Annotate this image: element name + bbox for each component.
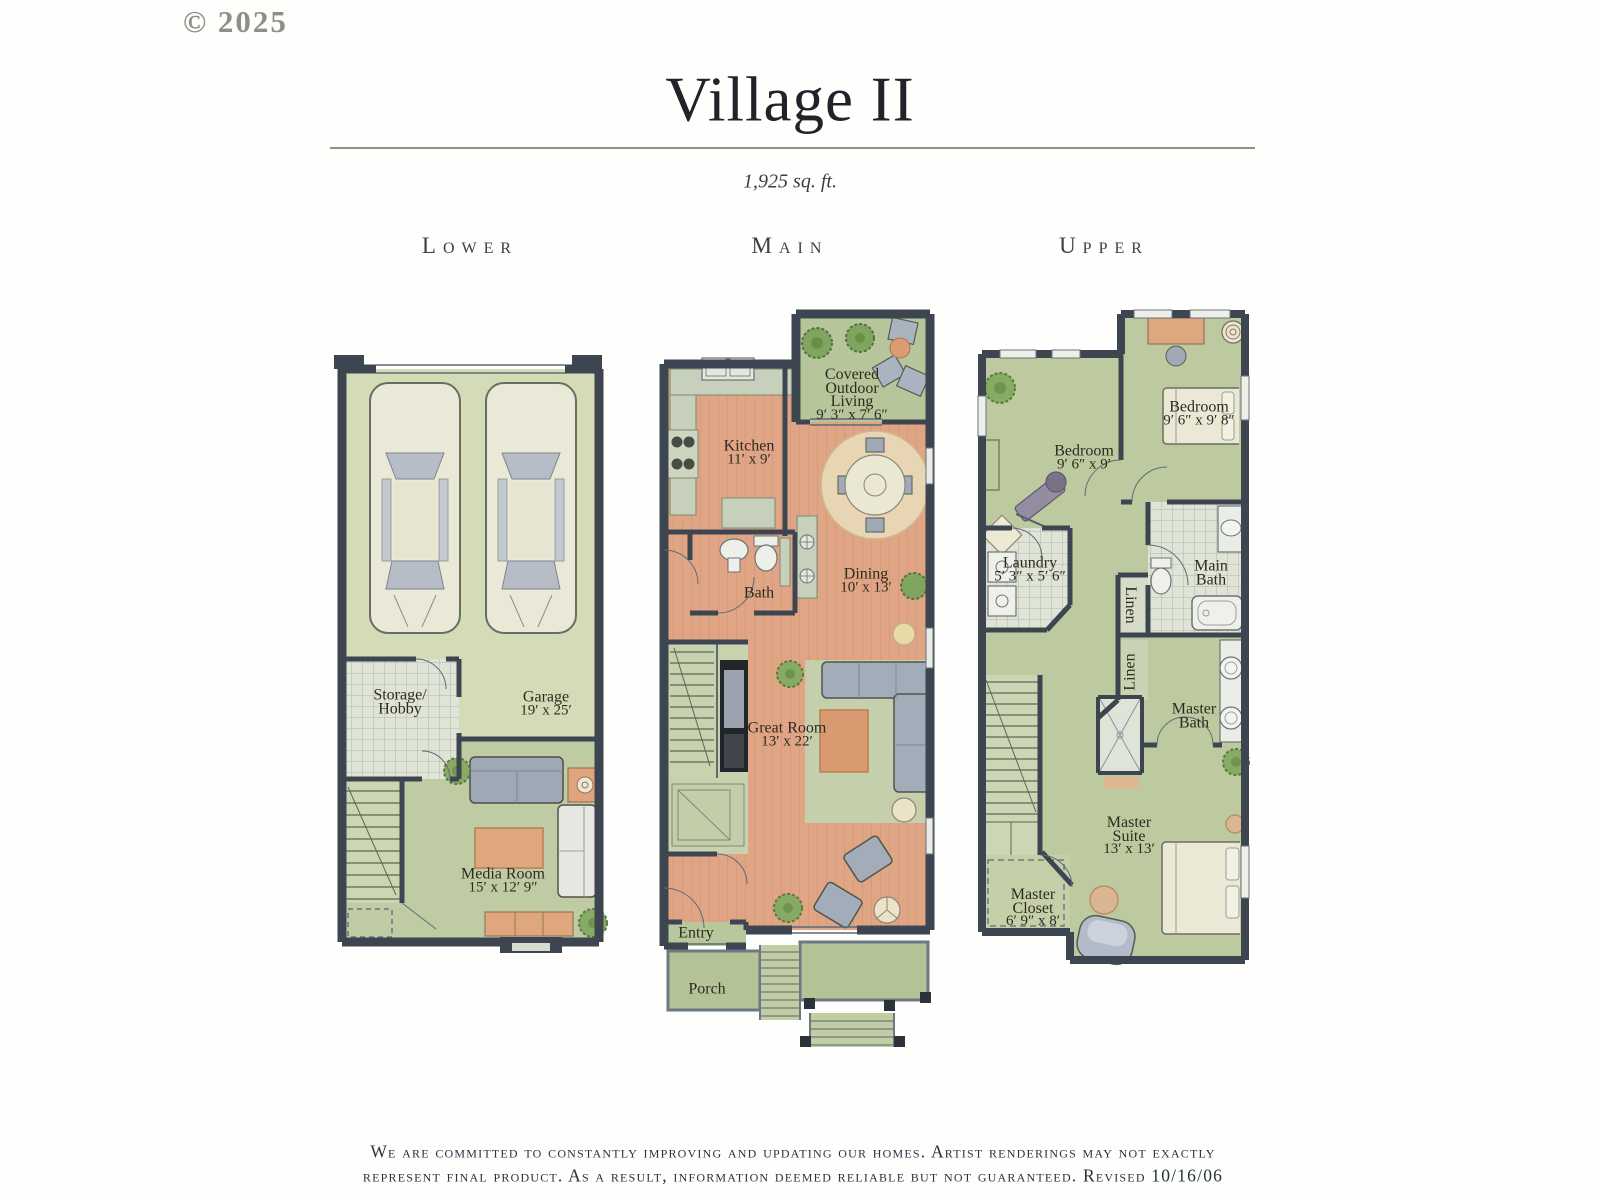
room-label-media-room: Media Room 15′ x 12′ 9″ [461, 868, 545, 895]
round-table-icon [1222, 321, 1244, 343]
room-label-master-suite: Master Suite 13′ x 13′ [1103, 816, 1155, 857]
room-dims: 13′ x 13′ [1103, 843, 1155, 857]
couch-icon [470, 757, 563, 803]
room-label-dining: Dining 10′ x 13′ [840, 568, 892, 595]
side-table-icon [874, 897, 900, 923]
room-name-line: Entry [678, 926, 714, 940]
room-label-master-closet: Master Closet 6′ 9″ x 8′ [1006, 888, 1060, 929]
copyright-text: © 2025 [183, 4, 288, 40]
bath-sink-icon [1218, 506, 1245, 552]
floor-header-lower: Lower [422, 233, 518, 259]
room-label-linen-upper: Linen [1123, 586, 1137, 623]
room-dims: 9′ 3″ x 7′ 6″ [816, 409, 888, 423]
room-name-line: Bath [1194, 573, 1228, 587]
floor-header-main: Main [752, 233, 829, 259]
stove-icon [668, 430, 698, 478]
bed-icon [1162, 840, 1246, 936]
floorplan-sheet: © 2025 Village II 1,925 sq. ft. Lower Ma… [0, 0, 1600, 1200]
room-label-bath: Bath [744, 586, 774, 600]
sofa-icon [558, 805, 596, 897]
rug [820, 710, 868, 772]
dining-table-icon [821, 431, 929, 539]
toilet-icon [1151, 558, 1171, 594]
media-console-icon [485, 912, 573, 936]
room-dims: 9′ 6″ x 9′ 8″ [1163, 414, 1235, 428]
room-dims: 11′ x 9′ [724, 453, 775, 467]
room-name-line: Hobby [373, 702, 426, 716]
room-label-bedroom-right: Bedroom 9′ 6″ x 9′ 8″ [1163, 401, 1235, 428]
room-label-covered-outdoor-living: Covered Outdoor Living 9′ 3″ x 7′ 6″ [816, 368, 888, 422]
floor-header-upper: Upper [1059, 233, 1149, 259]
room-label-storage-hobby: Storage/ Hobby [373, 689, 426, 716]
side-table-icon [893, 623, 915, 645]
room-dims: 13′ x 22′ [748, 735, 827, 749]
room-dims: 9′ 6″ x 9′ [1054, 458, 1114, 472]
room-name-line: Linen [1123, 586, 1137, 623]
room-label-laundry: Laundry 5′ 3″ x 5′ 6″ [994, 557, 1066, 584]
room-label-bedroom-left: Bedroom 9′ 6″ x 9′ [1054, 445, 1114, 472]
page-title: Village II [665, 64, 914, 137]
room-dims: 6′ 9″ x 8′ [1006, 915, 1060, 929]
room-dims: 19′ x 25′ [520, 704, 572, 718]
rug [475, 828, 543, 868]
room-label-master-bath: Master Bath [1172, 703, 1216, 730]
room-name-line: Bath [744, 586, 774, 600]
room-name-line: Bath [1172, 716, 1216, 730]
room-label-main-bath: Main Bath [1194, 560, 1228, 587]
square-footage: 1,925 sq. ft. [743, 171, 837, 194]
under-stair-closet [672, 784, 744, 846]
room-label-porch: Porch [688, 982, 725, 996]
title-divider [330, 147, 1255, 149]
round-rug [1090, 886, 1118, 914]
hall-cabinet [797, 516, 817, 598]
room-name-line: Linen [1123, 653, 1137, 690]
plant-icon [985, 373, 1015, 403]
bathtub-icon [1192, 596, 1242, 630]
room-label-kitchen: Kitchen 11′ x 9′ [724, 440, 775, 467]
room-name-line: Porch [688, 982, 725, 996]
pantry-cabinet [780, 538, 790, 586]
room-label-linen-lower: Linen [1123, 653, 1137, 690]
room-dims: 5′ 3″ x 5′ 6″ [994, 570, 1066, 584]
room-label-great-room: Great Room 13′ x 22′ [748, 722, 827, 749]
room-dims: 10′ x 13′ [840, 581, 892, 595]
room-label-garage: Garage 19′ x 25′ [520, 691, 572, 718]
plant-icon [901, 573, 927, 599]
lower-floor-plan-drawing [318, 343, 618, 953]
round-table-icon [892, 798, 916, 822]
room-dims: 15′ x 12′ 9″ [461, 881, 545, 895]
fireplace-icon [720, 660, 748, 772]
disclaimer-line-2: represent final product. As a result, in… [363, 1166, 1223, 1187]
disclaimer-line-1: We are committed to constantly improving… [370, 1142, 1215, 1163]
room-label-entry: Entry [678, 926, 714, 940]
